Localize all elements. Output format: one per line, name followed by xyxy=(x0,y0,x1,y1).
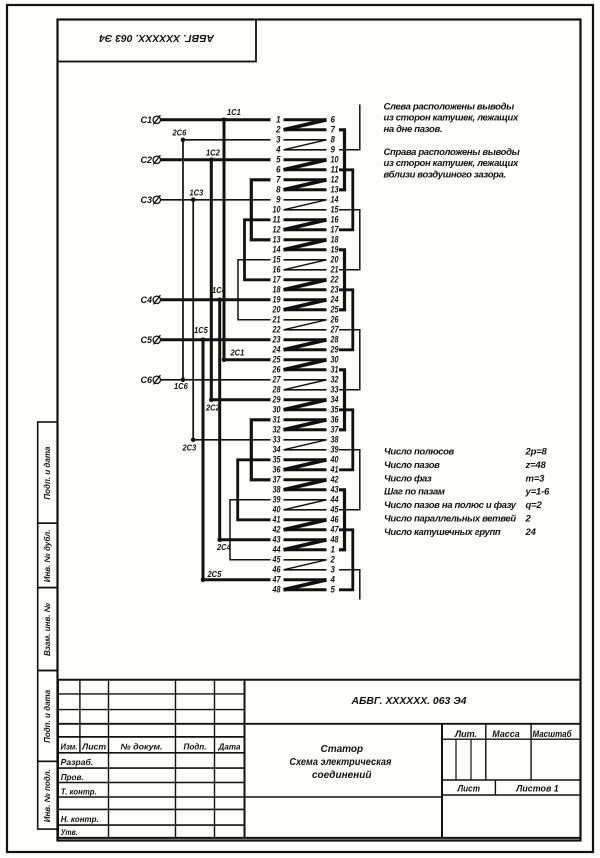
svg-text:44: 44 xyxy=(330,495,339,505)
svg-text:28: 28 xyxy=(330,335,339,345)
svg-text:из сторон катушек, лежащих: из сторон катушек, лежащих xyxy=(384,113,519,124)
svg-text:30: 30 xyxy=(273,405,281,415)
svg-text:26: 26 xyxy=(272,365,281,375)
svg-text:3: 3 xyxy=(276,135,280,145)
svg-text:43: 43 xyxy=(272,535,281,545)
svg-text:24: 24 xyxy=(272,345,281,355)
svg-text:46: 46 xyxy=(330,515,339,525)
svg-text:№ докум.: № докум. xyxy=(121,742,163,752)
svg-text:16: 16 xyxy=(273,265,281,275)
svg-text:1С5: 1С5 xyxy=(194,326,208,335)
svg-text:q=2: q=2 xyxy=(526,500,543,511)
svg-text:2С3: 2С3 xyxy=(182,444,197,453)
svg-text:18: 18 xyxy=(331,235,339,245)
svg-text:32: 32 xyxy=(273,425,281,435)
svg-text:С3: С3 xyxy=(140,195,152,205)
svg-text:Т. контр.: Т. контр. xyxy=(61,787,97,797)
svg-text:Пров.: Пров. xyxy=(61,772,84,782)
svg-text:8: 8 xyxy=(276,185,280,195)
svg-text:20: 20 xyxy=(330,255,339,265)
svg-text:17: 17 xyxy=(331,225,340,235)
svg-text:2: 2 xyxy=(330,555,335,565)
svg-text:Инв. № подл.: Инв. № подл. xyxy=(43,769,52,822)
svg-text:1С4: 1С4 xyxy=(212,286,226,295)
svg-text:27: 27 xyxy=(272,375,282,385)
svg-text:6: 6 xyxy=(276,165,280,175)
svg-text:28: 28 xyxy=(272,385,281,395)
svg-text:10: 10 xyxy=(273,205,281,215)
svg-text:Подп. и дата: Подп. и дата xyxy=(43,446,52,500)
svg-text:вблизи воздушного зазора.: вблизи воздушного зазора. xyxy=(384,169,506,180)
svg-text:2С1: 2С1 xyxy=(230,349,245,358)
svg-text:31: 31 xyxy=(273,415,281,425)
svg-text:22: 22 xyxy=(330,275,339,285)
svg-text:Число фаз: Число фаз xyxy=(384,473,432,484)
svg-text:16: 16 xyxy=(331,215,339,225)
svg-text:14: 14 xyxy=(331,195,339,205)
svg-text:АБВГ. ХХХХХХ. 063 Э4: АБВГ. ХХХХХХ. 063 Э4 xyxy=(350,696,466,707)
svg-text:29: 29 xyxy=(272,395,281,405)
svg-text:Взам. инв. №: Взам. инв. № xyxy=(43,602,52,656)
svg-text:2: 2 xyxy=(525,514,532,525)
svg-text:Н. контр.: Н. контр. xyxy=(61,814,99,824)
svg-text:21: 21 xyxy=(272,315,281,325)
svg-text:32: 32 xyxy=(331,375,339,385)
svg-text:С6: С6 xyxy=(140,375,152,385)
svg-text:Число катушечных групп: Число катушечных групп xyxy=(384,527,501,538)
svg-text:21: 21 xyxy=(330,265,339,275)
svg-text:Изм.: Изм. xyxy=(61,742,78,752)
svg-text:11: 11 xyxy=(273,215,281,225)
svg-text:18: 18 xyxy=(273,285,281,295)
svg-text:34: 34 xyxy=(273,445,281,455)
svg-text:12: 12 xyxy=(331,175,339,185)
svg-text:Подп. и дата: Подп. и дата xyxy=(43,689,52,743)
svg-text:37: 37 xyxy=(331,425,340,435)
svg-text:Лист: Лист xyxy=(81,742,107,752)
svg-text:40: 40 xyxy=(272,505,281,515)
svg-text:Слева расположены выводы: Слева расположены выводы xyxy=(384,101,515,112)
svg-text:Число параллельных ветвей: Число параллельных ветвей xyxy=(384,514,516,525)
svg-text:Схема электрическая: Схема электрическая xyxy=(289,757,391,768)
svg-text:4: 4 xyxy=(275,145,280,155)
svg-text:Статор: Статор xyxy=(320,744,363,755)
svg-text:38: 38 xyxy=(331,435,339,445)
svg-text:соединений: соединений xyxy=(312,770,372,781)
svg-text:2p=8: 2p=8 xyxy=(525,447,548,458)
svg-text:40: 40 xyxy=(330,455,339,465)
svg-text:С5: С5 xyxy=(140,335,152,345)
svg-text:6: 6 xyxy=(331,115,335,125)
svg-text:24: 24 xyxy=(330,295,339,305)
svg-text:Утв.: Утв. xyxy=(61,827,78,837)
svg-text:С4: С4 xyxy=(140,295,152,305)
svg-text:Шаг по пазам: Шаг по пазам xyxy=(384,487,445,498)
svg-text:48: 48 xyxy=(330,535,339,545)
svg-text:y=1-6: y=1-6 xyxy=(525,487,550,498)
svg-text:Масштаб: Масштаб xyxy=(533,729,572,739)
svg-text:23: 23 xyxy=(330,285,339,295)
svg-text:20: 20 xyxy=(272,305,281,315)
svg-text:11: 11 xyxy=(331,165,339,175)
svg-text:Листов 1: Листов 1 xyxy=(515,784,558,794)
svg-text:Число пазов на полюс и фазу: Число пазов на полюс и фазу xyxy=(384,500,517,511)
svg-text:Подп.: Подп. xyxy=(184,742,207,752)
svg-text:2С4: 2С4 xyxy=(216,543,231,552)
svg-text:С1: С1 xyxy=(140,115,152,125)
svg-text:42: 42 xyxy=(330,475,339,485)
svg-text:z=48: z=48 xyxy=(525,460,547,471)
svg-text:13: 13 xyxy=(273,235,281,245)
svg-text:15: 15 xyxy=(331,205,339,215)
svg-text:34: 34 xyxy=(331,395,339,405)
svg-text:27: 27 xyxy=(330,325,340,335)
svg-text:25: 25 xyxy=(330,305,339,315)
svg-text:29: 29 xyxy=(330,345,339,355)
svg-text:5: 5 xyxy=(276,155,280,165)
svg-text:26: 26 xyxy=(330,315,339,325)
svg-text:30: 30 xyxy=(331,355,339,365)
svg-text:m=3: m=3 xyxy=(526,473,546,484)
svg-text:33: 33 xyxy=(331,385,339,395)
svg-text:38: 38 xyxy=(273,485,281,495)
svg-text:2С5: 2С5 xyxy=(207,570,222,579)
svg-text:35: 35 xyxy=(273,455,281,465)
svg-text:47: 47 xyxy=(272,575,282,585)
svg-text:12: 12 xyxy=(273,225,281,235)
svg-text:35: 35 xyxy=(331,405,339,415)
svg-text:АБВГ. ХХХХХХ. 063 Э4: АБВГ. ХХХХХХ. 063 Э4 xyxy=(99,32,215,43)
svg-text:Число полюсов: Число полюсов xyxy=(384,447,455,458)
svg-text:1С6: 1С6 xyxy=(174,382,188,391)
svg-text:13: 13 xyxy=(331,185,339,195)
svg-text:42: 42 xyxy=(272,525,281,535)
svg-text:19: 19 xyxy=(331,245,339,255)
svg-text:48: 48 xyxy=(272,585,281,595)
svg-text:1: 1 xyxy=(276,115,280,125)
svg-text:1С3: 1С3 xyxy=(190,189,204,198)
svg-text:2С2: 2С2 xyxy=(205,404,220,413)
svg-text:1С2: 1С2 xyxy=(206,149,220,158)
svg-text:Инв. № дубл.: Инв. № дубл. xyxy=(43,530,52,583)
svg-text:5: 5 xyxy=(331,585,335,595)
svg-text:2: 2 xyxy=(275,125,280,135)
svg-text:1С1: 1С1 xyxy=(227,108,241,117)
svg-text:43: 43 xyxy=(330,485,339,495)
svg-text:Справа расположены выводы: Справа расположены выводы xyxy=(384,147,520,158)
svg-text:41: 41 xyxy=(330,465,339,475)
svg-text:41: 41 xyxy=(272,515,281,525)
svg-text:36: 36 xyxy=(331,415,339,425)
svg-text:37: 37 xyxy=(273,475,282,485)
svg-text:3: 3 xyxy=(331,565,335,575)
svg-text:1: 1 xyxy=(331,545,335,555)
svg-text:4: 4 xyxy=(330,575,335,585)
svg-text:46: 46 xyxy=(272,565,281,575)
svg-text:С2: С2 xyxy=(140,155,152,165)
svg-text:на дне пазов.: на дне пазов. xyxy=(384,124,443,135)
svg-text:Число пазов: Число пазов xyxy=(384,460,440,471)
svg-text:8: 8 xyxy=(331,135,335,145)
svg-text:33: 33 xyxy=(273,435,281,445)
svg-text:45: 45 xyxy=(330,505,339,515)
svg-text:17: 17 xyxy=(273,275,282,285)
svg-text:36: 36 xyxy=(273,465,281,475)
svg-text:15: 15 xyxy=(273,255,281,265)
svg-text:Лист: Лист xyxy=(457,784,480,794)
svg-text:Лит.: Лит. xyxy=(454,729,477,739)
svg-text:39: 39 xyxy=(331,445,339,455)
svg-text:10: 10 xyxy=(331,155,339,165)
svg-text:25: 25 xyxy=(272,355,281,365)
svg-text:Масса: Масса xyxy=(492,729,520,739)
svg-text:Разраб.: Разраб. xyxy=(61,757,93,767)
svg-text:44: 44 xyxy=(272,545,281,555)
svg-text:9: 9 xyxy=(276,195,280,205)
svg-text:39: 39 xyxy=(273,495,281,505)
svg-text:14: 14 xyxy=(273,245,281,255)
svg-text:31: 31 xyxy=(331,365,339,375)
svg-text:Дата: Дата xyxy=(218,742,241,752)
svg-text:23: 23 xyxy=(272,335,281,345)
svg-text:47: 47 xyxy=(330,525,340,535)
svg-text:из сторон катушек, лежащих: из сторон катушек, лежащих xyxy=(384,158,519,169)
svg-text:19: 19 xyxy=(273,295,281,305)
svg-text:9: 9 xyxy=(331,145,335,155)
svg-text:24: 24 xyxy=(525,527,537,538)
svg-text:45: 45 xyxy=(272,555,281,565)
svg-text:22: 22 xyxy=(272,325,281,335)
svg-text:2С6: 2С6 xyxy=(172,129,187,138)
